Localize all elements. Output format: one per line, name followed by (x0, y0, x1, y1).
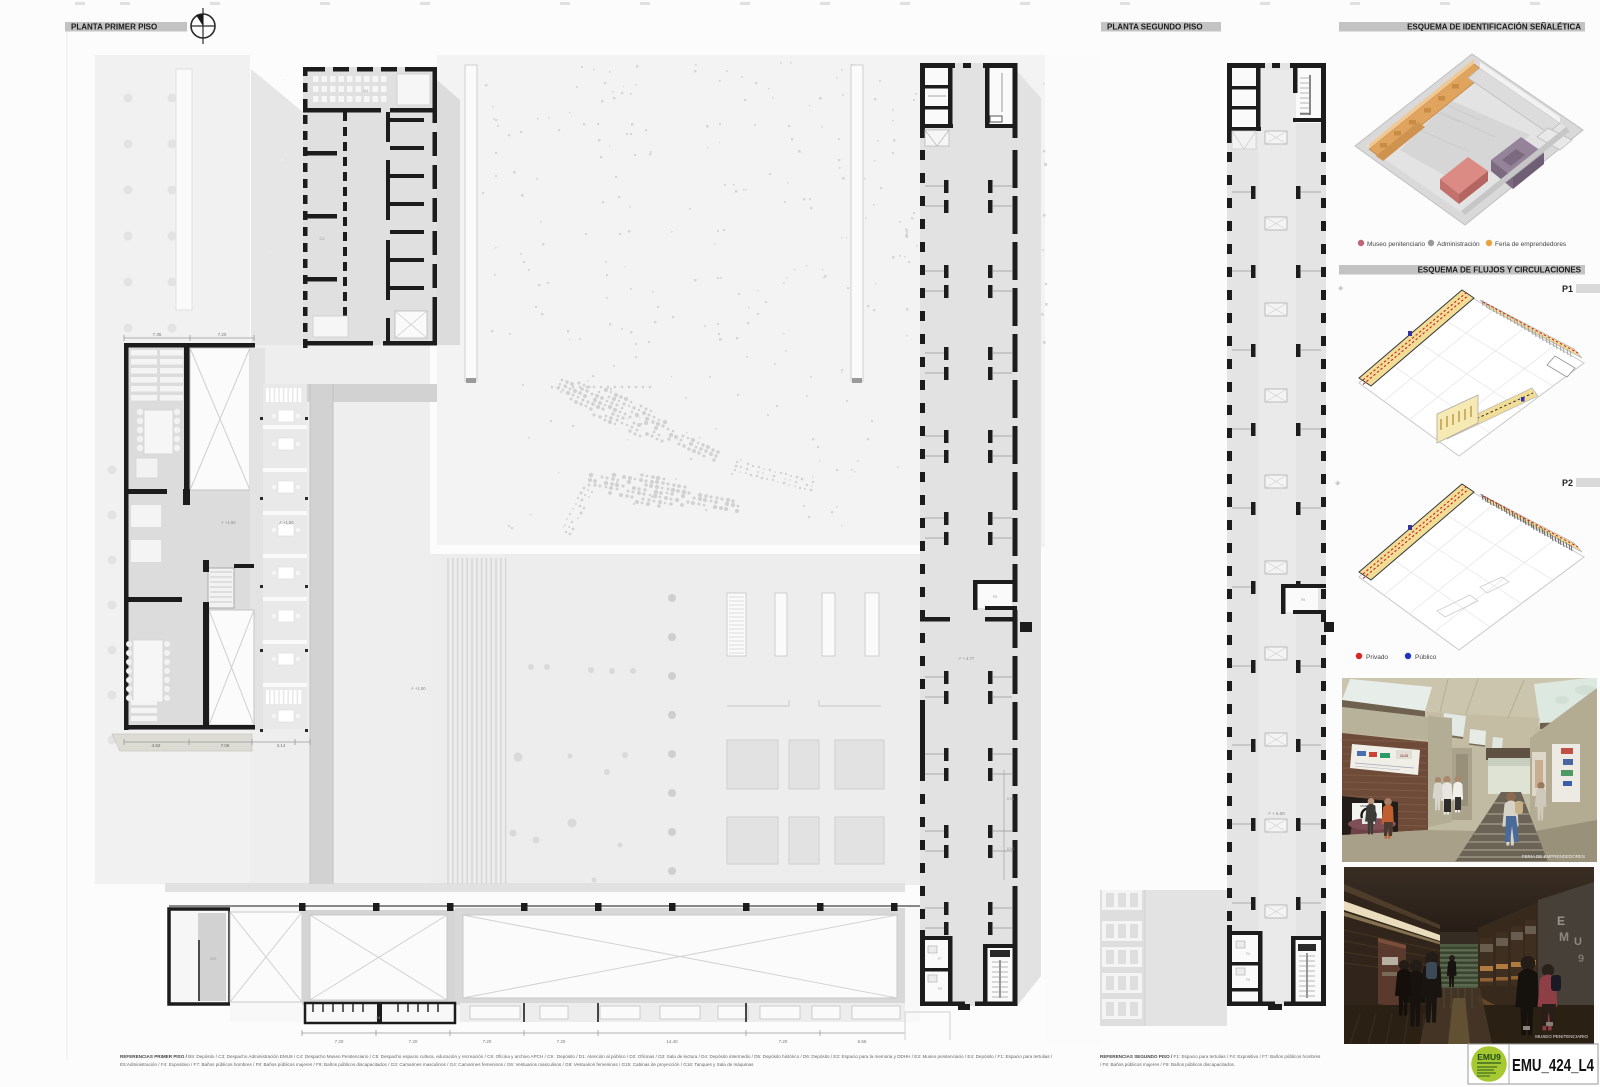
svg-text:ESQUEMA DE FLUJOS Y CIRCULACIO: ESQUEMA DE FLUJOS Y CIRCULACIONES (1418, 266, 1582, 275)
svg-text:24.28: 24.28 (1400, 754, 1408, 758)
svg-text:U: U (1574, 936, 1582, 948)
svg-text:7.20: 7.20 (557, 1039, 566, 1044)
svg-text:MUSEO PENITENCIARIO: MUSEO PENITENCIARIO (1535, 1034, 1588, 1039)
svg-text:E: E (1557, 914, 1565, 928)
svg-text:F5: F5 (993, 595, 997, 599)
svg-text:PLANTA PRIMER PISO: PLANTA PRIMER PISO (71, 23, 157, 32)
svg-text:P2: P2 (1562, 478, 1573, 488)
svg-text:G4: G4 (376, 1016, 381, 1020)
svg-text:Público: Público (1415, 654, 1437, 661)
svg-text:7.35: 7.35 (153, 332, 162, 337)
svg-text:Administración: Administración (1437, 241, 1480, 248)
svg-text:9: 9 (1578, 953, 1584, 965)
svg-text:M: M (1559, 930, 1569, 944)
svg-text:3.14: 3.14 (277, 743, 286, 748)
svg-text:REFERENCIAS SEGUNDO PISO / F1:: REFERENCIAS SEGUNDO PISO / F1: Espacio p… (1100, 1054, 1321, 1059)
svg-text:F9: F9 (1246, 978, 1250, 982)
svg-text:Feria de emprendedores: Feria de emprendedores (1495, 241, 1567, 248)
svg-text:EMU_424_L4: EMU_424_L4 (1512, 1055, 1594, 1075)
svg-text:◈: ◈ (1335, 480, 1341, 487)
svg-text:EMU9: EMU9 (1477, 1052, 1501, 1062)
svg-text:F5: F5 (1301, 598, 1305, 602)
svg-text:14.40: 14.40 (666, 1039, 678, 1044)
svg-text:7.06: 7.06 (221, 743, 230, 748)
svg-text:7.20: 7.20 (779, 1039, 788, 1044)
svg-text:4.62: 4.62 (152, 743, 161, 748)
svg-text:F7: F7 (938, 957, 942, 961)
svg-text:7.20: 7.20 (218, 332, 227, 337)
svg-text:F4: F4 (1246, 952, 1250, 956)
svg-text:8.00: 8.00 (1007, 797, 1014, 801)
svg-text:G19: G19 (210, 957, 217, 961)
svg-text:ESQUEMA DE IDENTIFICACIÓN SEÑA: ESQUEMA DE IDENTIFICACIÓN SEÑALÉTICA (1407, 23, 1581, 32)
svg-text:↗ + 6.00: ↗ + 6.00 (1267, 811, 1285, 816)
svg-text:7.20: 7.20 (409, 1039, 418, 1044)
svg-text:C2: C2 (319, 236, 325, 241)
svg-text:Museo penitenciario: Museo penitenciario (1367, 241, 1426, 248)
svg-text:/ F8: Baños públicos mujeres /: / F8: Baños públicos mujeres / F9: Baños… (1100, 1062, 1235, 1067)
svg-text:REFERENCIAS PRIMER PISO / B9:: REFERENCIAS PRIMER PISO / B9: Depósito /… (120, 1054, 1053, 1059)
svg-text:PLANTA SEGUNDO PISO: PLANTA SEGUNDO PISO (1107, 23, 1203, 32)
svg-text:6.56: 6.56 (858, 1039, 867, 1044)
svg-text:7.20: 7.20 (335, 1039, 344, 1044)
svg-text:36.07: 36.07 (904, 227, 909, 238)
svg-text:E5:Administración / F4: Exposi: E5:Administración / F4: Expositivo / F7:… (120, 1062, 754, 1067)
svg-text:A1: A1 (364, 88, 370, 93)
svg-text:8.00: 8.00 (1007, 847, 1014, 851)
svg-text:7.20: 7.20 (483, 1039, 492, 1044)
svg-text:Privado: Privado (1366, 654, 1388, 661)
svg-text:↗ +1.50: ↗ +1.50 (278, 520, 294, 525)
svg-text:FERIA DE EMPRENDEDORES: FERIA DE EMPRENDEDORES (1522, 854, 1585, 859)
svg-text:↗ +1.50: ↗ +1.50 (220, 520, 236, 525)
svg-text:↗ + 4.77: ↗ + 4.77 (958, 656, 975, 661)
svg-text:◈: ◈ (1338, 285, 1344, 292)
svg-text:P1: P1 (1562, 284, 1573, 294)
svg-text:F9: F9 (938, 987, 942, 991)
svg-text:↗ +1.50: ↗ +1.50 (410, 686, 426, 691)
